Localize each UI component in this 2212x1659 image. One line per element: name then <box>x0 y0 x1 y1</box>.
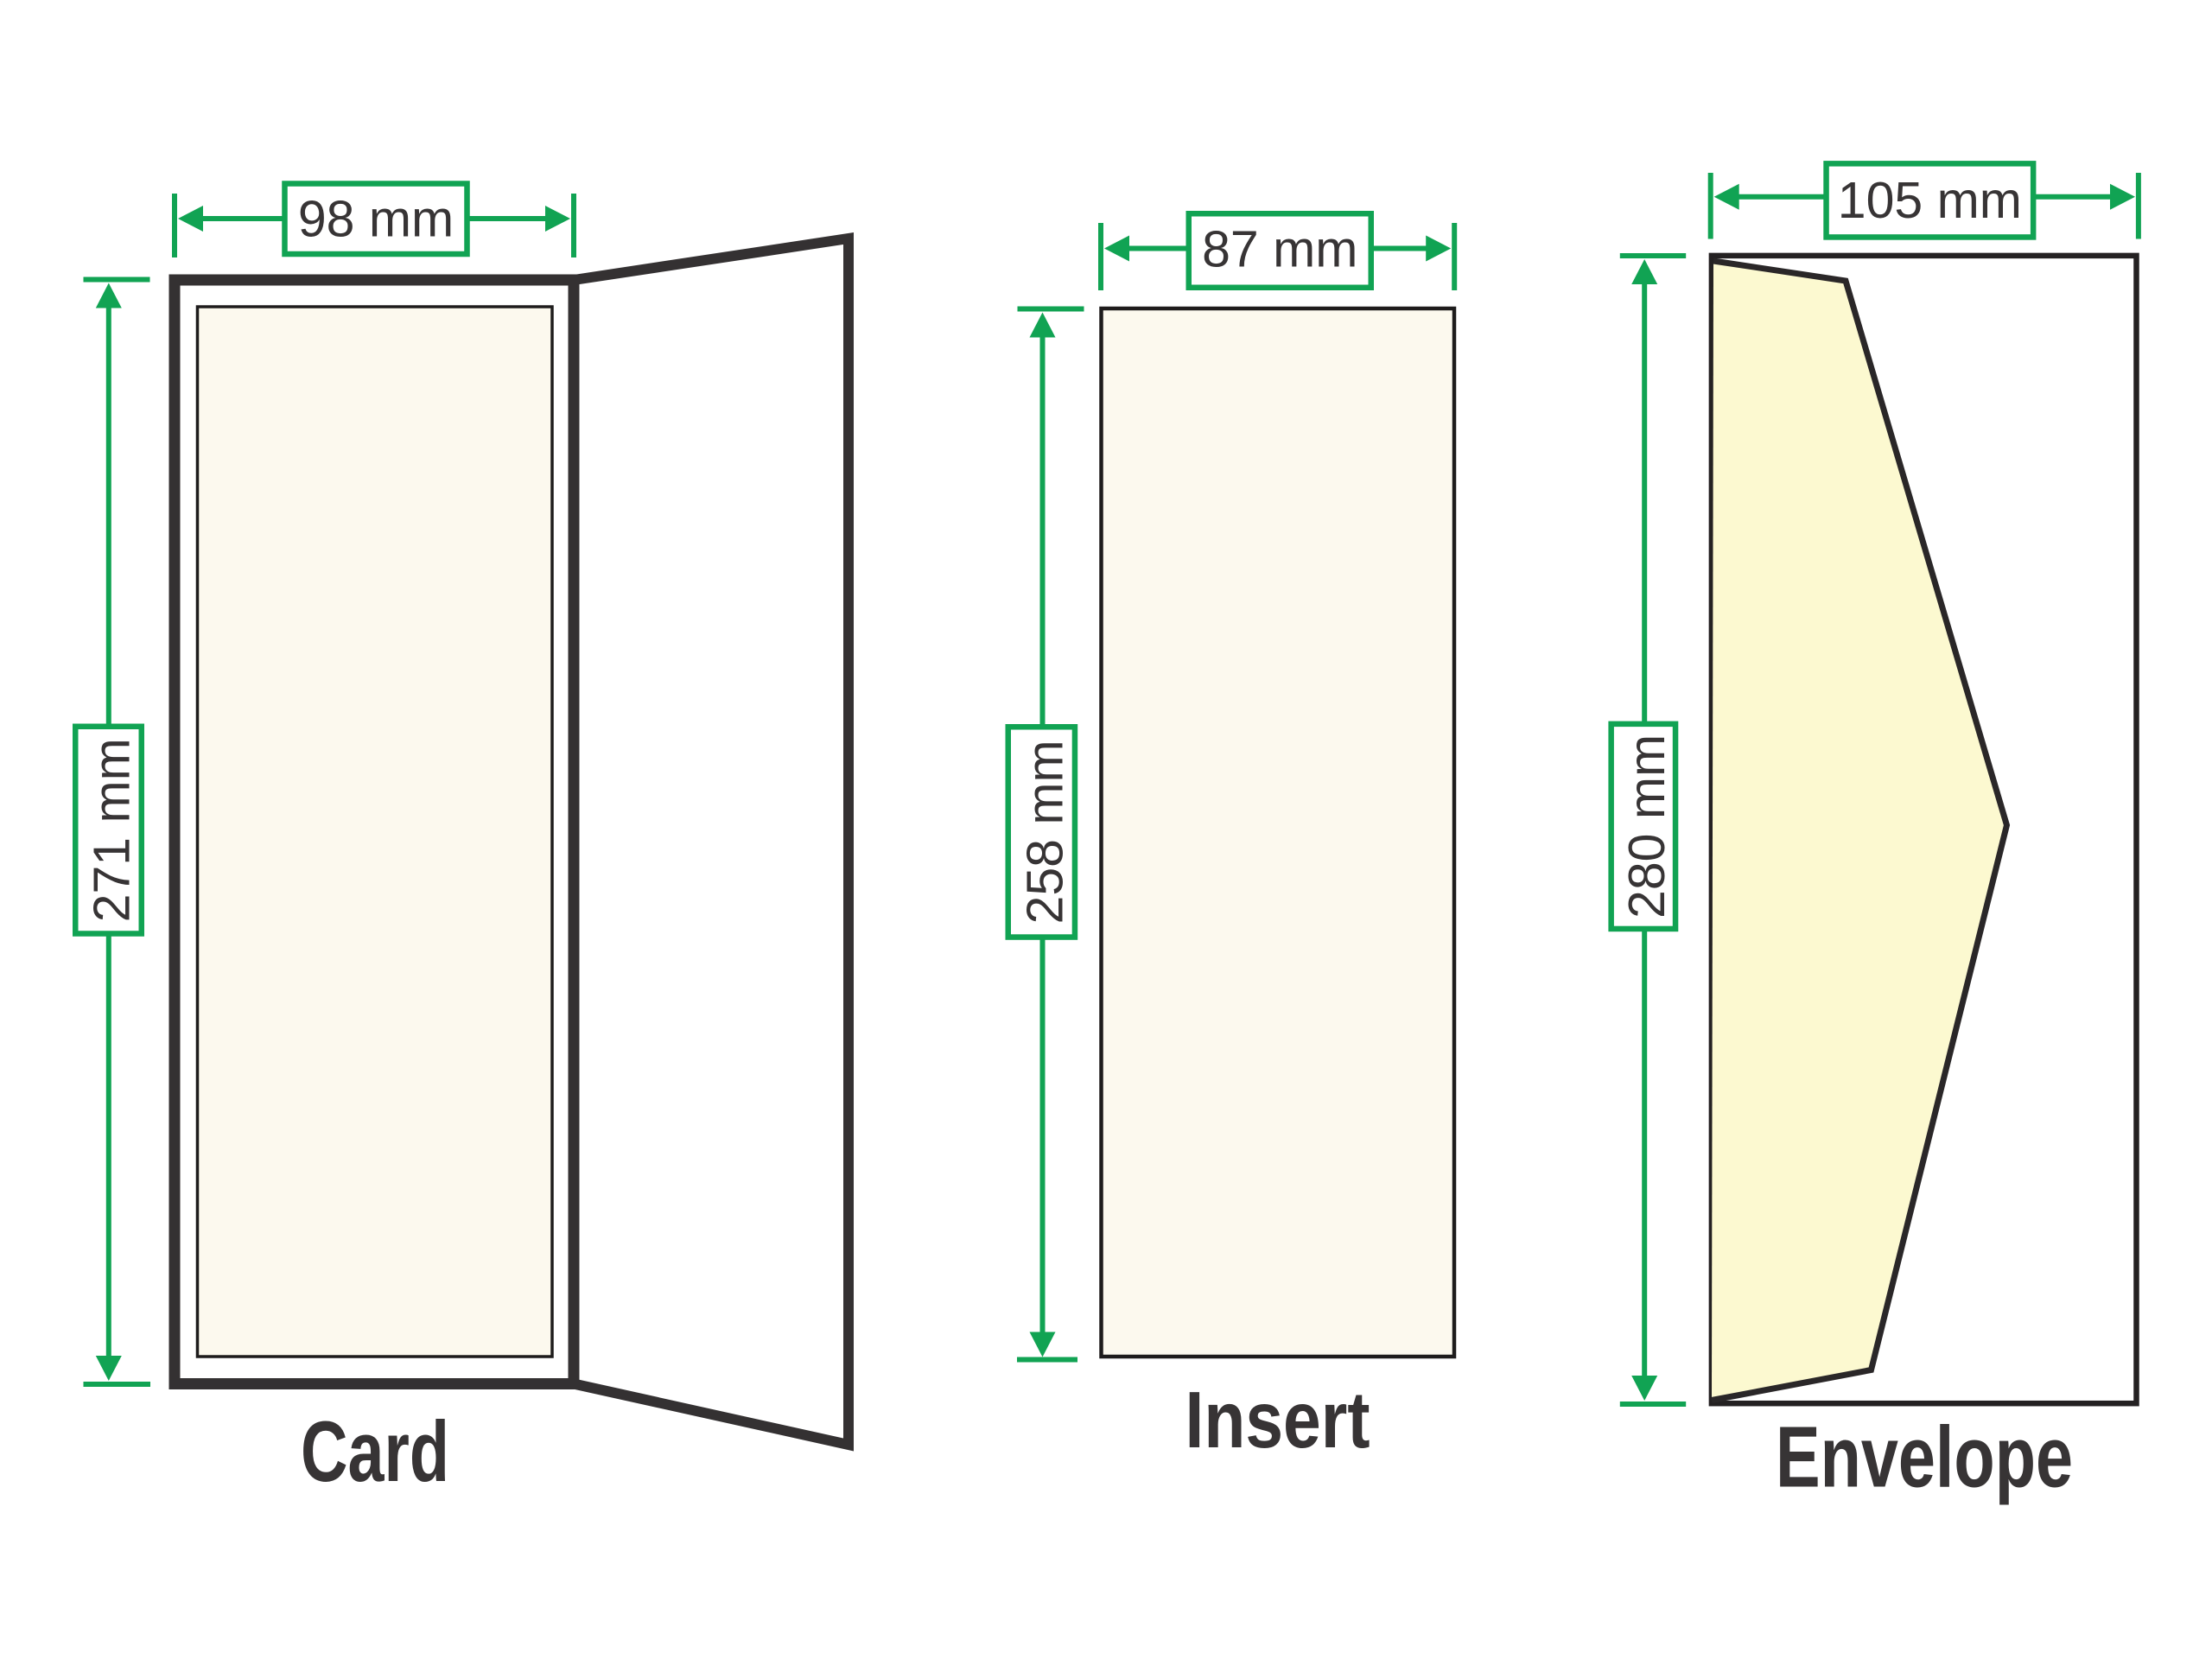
svg-text:105 mm: 105 mm <box>1838 172 2022 229</box>
svg-text:Envelope: Envelope <box>1776 1409 2073 1506</box>
svg-text:98 mm: 98 mm <box>298 191 454 248</box>
svg-text:280 mm: 280 mm <box>1618 734 1675 918</box>
svg-text:271 mm: 271 mm <box>84 738 141 922</box>
svg-text:Insert: Insert <box>1185 1375 1370 1465</box>
svg-text:258 mm: 258 mm <box>1016 740 1073 924</box>
svg-text:87 mm: 87 mm <box>1202 221 1357 278</box>
svg-text:Card: Card <box>301 1403 449 1499</box>
